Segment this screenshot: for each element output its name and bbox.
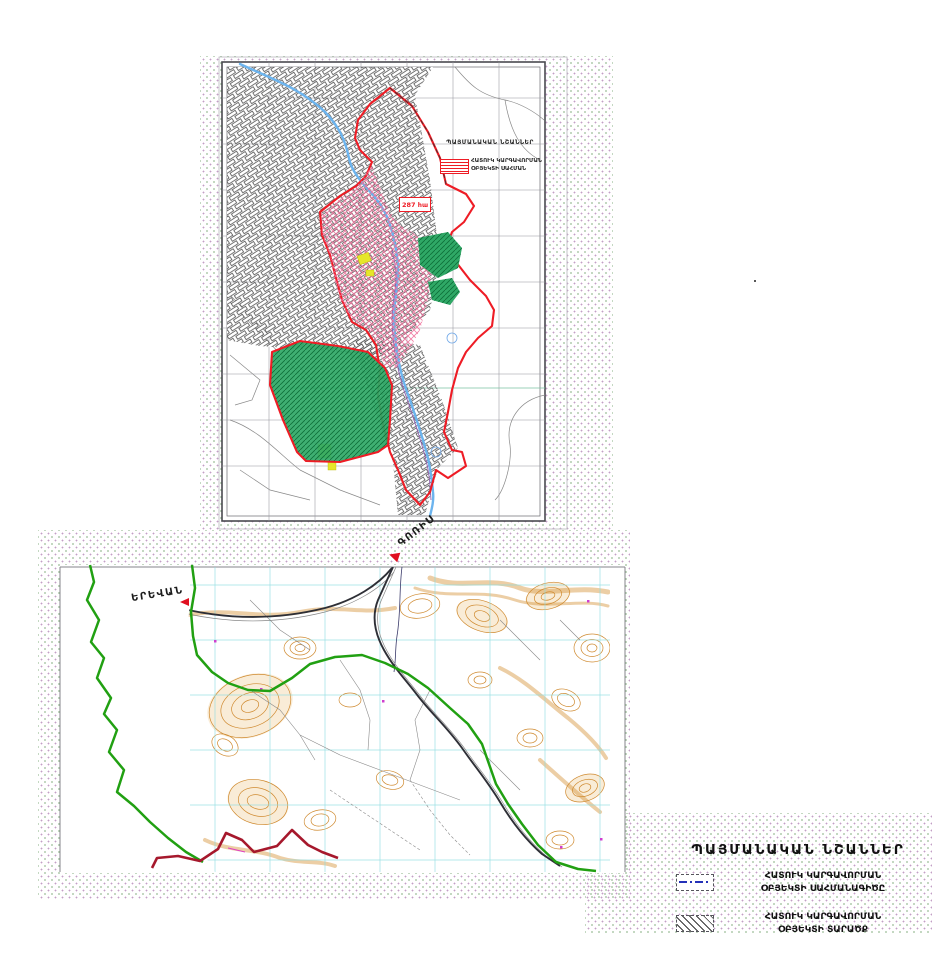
legend-item-territory: ՀԱՏՈՒԿ ԿԱՐԳԱՎՈՐՄԱՆ ՕԲՅԵԿՏԻ ՏԱՐԱԾՔ (664, 911, 932, 936)
topographic-map (50, 525, 635, 885)
legend-item-boundary-text: ՀԱՏՈՒԿ ԿԱՐԳԱՎՈՐՄԱՆ ՕԲՅԵԿՏԻ ՍԱՀՄԱՆԱԳԻԾԸ (714, 870, 932, 895)
top-legend-title: ՊԱՅՄԱՆԱԿԱՆ ՆՇԱՆՆԵՐ (441, 139, 539, 146)
legend-boundary-line2: ՕԲՅԵԿՏԻ ՍԱՀՄԱՆԱԳԻԾԸ (714, 883, 932, 896)
top-legend-item: ՀԱՏՈՒԿ ԿԱՐԳԱՎՈՐՄԱՆ ՕԲՅԵԿՏԻ ՍԱՀՄԱՆ (471, 158, 547, 173)
yerevan-arrow-icon (180, 598, 189, 606)
map-legend: ՊԱՅՄԱՆԱԿԱՆ ՆՇԱՆՆԵՐ ՀԱՏՈՒԿ ԿԱՐԳԱՎՈՐՄԱՆ ՕԲ… (664, 842, 932, 936)
legend-boundary-line1: ՀԱՏՈՒԿ ԿԱՐԳԱՎՈՐՄԱՆ (714, 870, 932, 883)
boundary-line-symbol-icon (676, 874, 714, 891)
city-plan-map (210, 48, 580, 538)
legend-item-territory-text: ՀԱՏՈՒԿ ԿԱՐԳԱՎՈՐՄԱՆ ՕԲՅԵԿՏԻ ՏԱՐԱԾՔ (714, 911, 932, 936)
top-legend-line1: ՀԱՏՈՒԿ ԿԱՐԳԱՎՈՐՄԱՆ (471, 158, 547, 166)
top-legend-line2: ՕԲՅԵԿՏԻ ՍԱՀՄԱՆ (471, 166, 547, 174)
legend-territory-line2: ՕԲՅԵԿՏԻ ՏԱՐԱԾՔ (714, 924, 932, 937)
hatched-area-symbol-icon (676, 915, 714, 932)
area-label: 287 հա (399, 197, 431, 212)
dashdot-line-icon (679, 881, 711, 883)
legend-title: ՊԱՅՄԱՆԱԿԱՆ ՆՇԱՆՆԵՐ (664, 842, 932, 858)
legend-territory-line1: ՀԱՏՈՒԿ ԿԱՐԳԱՎՈՐՄԱՆ (714, 911, 932, 924)
scanned-planning-document: ՊԱՅՄԱՆԱԿԱՆ ՆՇԱՆՆԵՐ ՀԱՏՈՒԿ ԿԱՐԳԱՎՈՐՄԱՆ ՕԲ… (0, 0, 935, 979)
legend-item-boundary: ՀԱՏՈՒԿ ԿԱՐԳԱՎՈՐՄԱՆ ՕԲՅԵԿՏԻ ՍԱՀՄԱՆԱԳԻԾԸ (664, 870, 932, 895)
scan-speck (754, 280, 756, 282)
regulated-zone-swatch-icon (440, 159, 469, 174)
